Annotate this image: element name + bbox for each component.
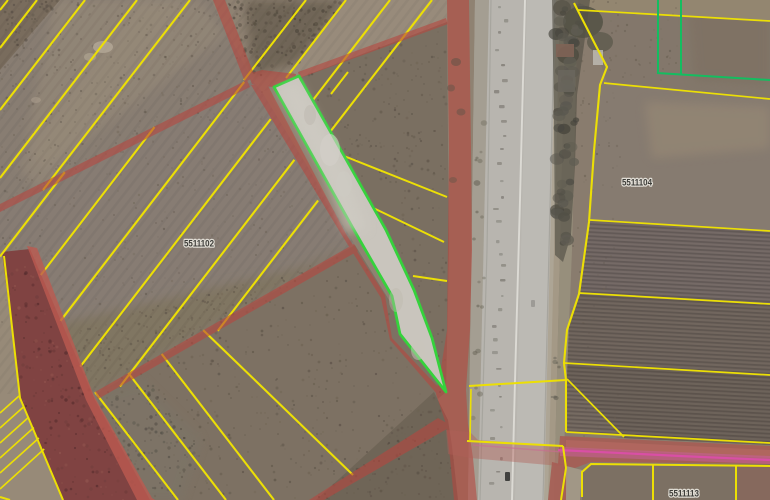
svg-text:5511104: 5511104 — [622, 178, 653, 189]
svg-text:5511102: 5511102 — [184, 239, 214, 250]
svg-text:5511113: 5511113 — [669, 489, 699, 500]
